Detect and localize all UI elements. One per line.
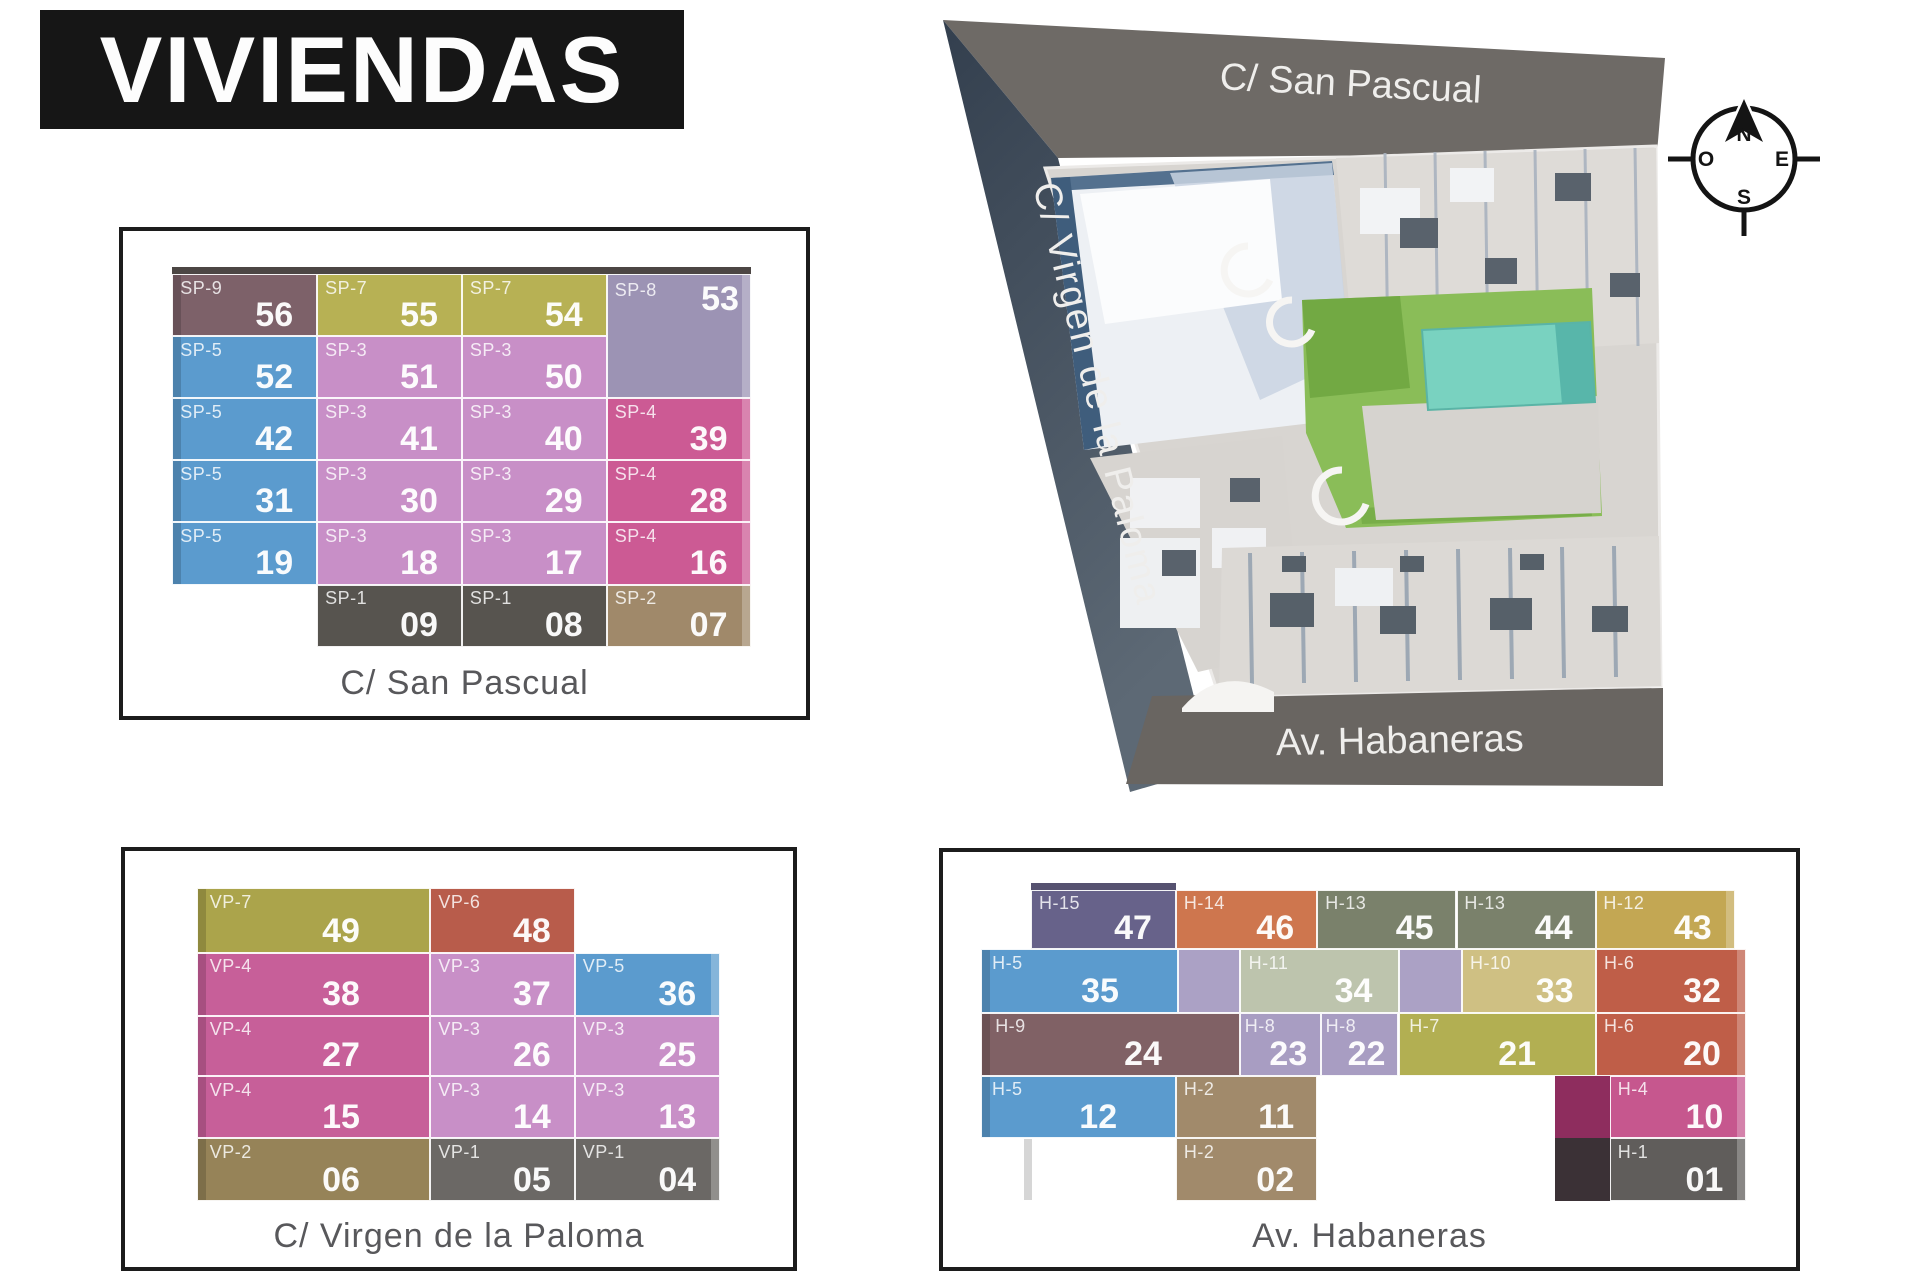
unit-type-label: SP-7 bbox=[470, 278, 512, 299]
unit-cell-56[interactable]: SP-956 bbox=[172, 274, 317, 336]
unit-cell-13[interactable]: VP-313 bbox=[575, 1076, 721, 1138]
unit-cell-23[interactable]: H-823 bbox=[1240, 1013, 1321, 1076]
unit-cell-25[interactable]: VP-325 bbox=[575, 1016, 721, 1077]
unit-type-label: SP-3 bbox=[470, 402, 512, 423]
unit-cell-30[interactable]: SP-330 bbox=[317, 460, 462, 522]
unit-cell-36[interactable]: VP-536 bbox=[575, 953, 721, 1016]
unit-cell-53[interactable]: SP-853 bbox=[607, 274, 752, 398]
unit-cell-20[interactable]: H-620 bbox=[1596, 1013, 1746, 1076]
unit-type-label: SP-3 bbox=[325, 402, 367, 423]
unit-type-label: VP-3 bbox=[583, 1080, 625, 1101]
unit-cell-16[interactable]: SP-416 bbox=[607, 522, 752, 584]
unit-number: 40 bbox=[545, 421, 583, 458]
unit-number: 25 bbox=[658, 1037, 696, 1074]
unit-cell-46[interactable]: H-1446 bbox=[1176, 890, 1318, 949]
unit-type-label: H-7 bbox=[1409, 1016, 1440, 1037]
unit-cell-41[interactable]: SP-341 bbox=[317, 398, 462, 460]
unit-type-label: SP-1 bbox=[470, 588, 512, 609]
unit-cell-07[interactable]: SP-207 bbox=[607, 585, 752, 647]
unit-type-label: VP-3 bbox=[438, 1019, 480, 1040]
unit-number: 13 bbox=[658, 1099, 696, 1136]
unit-cell-48[interactable]: VP-648 bbox=[430, 888, 574, 952]
unit-cell-33[interactable]: H-1033 bbox=[1462, 949, 1595, 1013]
unit-cell-24[interactable]: H-924 bbox=[981, 1013, 1239, 1076]
unit-type-label: SP-3 bbox=[325, 464, 367, 485]
unit-cell-12[interactable]: H-512 bbox=[981, 1076, 1175, 1139]
unit-cell-34[interactable]: H-1134 bbox=[1240, 949, 1399, 1013]
block-face bbox=[1555, 1138, 1610, 1201]
unit-type-label: SP-8 bbox=[615, 280, 657, 301]
unit-cell-03[interactable]: H-303 bbox=[1023, 1138, 1176, 1201]
unit-cell-04[interactable]: VP-104 bbox=[575, 1138, 721, 1201]
unit-cell-47[interactable]: H-1547 bbox=[1031, 890, 1176, 949]
unit-number: 06 bbox=[322, 1162, 360, 1199]
unit-number: 19 bbox=[255, 545, 293, 582]
unit-cell-18[interactable]: SP-318 bbox=[317, 522, 462, 584]
unit-type-label: SP-3 bbox=[470, 464, 512, 485]
unit-cell-43[interactable]: H-1243 bbox=[1596, 890, 1735, 949]
unit-number: 20 bbox=[1683, 1036, 1721, 1073]
unit-cell-26[interactable]: VP-326 bbox=[430, 1016, 574, 1077]
unit-cell-54[interactable]: SP-754 bbox=[462, 274, 607, 336]
block-face bbox=[1555, 1076, 1610, 1139]
unit-type-label: SP-3 bbox=[325, 340, 367, 361]
unit-number: 26 bbox=[513, 1037, 551, 1074]
aerial-site-plan: C/ San Pascual C/ Virgen de la Paloma Av… bbox=[930, 8, 1820, 800]
unit-number: 50 bbox=[545, 359, 583, 396]
unit-number: 02 bbox=[1256, 1162, 1294, 1199]
unit-type-label: H-13 bbox=[1464, 893, 1505, 914]
unit-number: 39 bbox=[690, 421, 728, 458]
unit-cell-10[interactable]: H-410 bbox=[1610, 1076, 1746, 1139]
unit-type-label: H-15 bbox=[1039, 893, 1080, 914]
unit-type-label: VP-3 bbox=[583, 1019, 625, 1040]
courtyard-terrace bbox=[1362, 396, 1601, 520]
unit-number: 23 bbox=[1269, 1036, 1307, 1073]
unit-number: 34 bbox=[1335, 973, 1373, 1010]
unit-number: 53 bbox=[701, 281, 739, 318]
unit-cell-40[interactable]: SP-340 bbox=[462, 398, 607, 460]
unit-cell-14[interactable]: VP-314 bbox=[430, 1076, 574, 1138]
unit-type-label: H-9 bbox=[995, 1016, 1026, 1037]
unit-cell-05[interactable]: VP-105 bbox=[430, 1138, 574, 1201]
unit-type-label: H-5 bbox=[992, 1079, 1023, 1100]
unit-number: 31 bbox=[255, 483, 293, 520]
unit-number: 32 bbox=[1683, 973, 1721, 1010]
unit-cell-39[interactable]: SP-439 bbox=[607, 398, 752, 460]
street-label: C/ Virgen de la Paloma bbox=[125, 1217, 793, 1256]
panel-habaneras: Av. Habaneras H-1547H-1446H-1345H-1344H-… bbox=[939, 848, 1800, 1271]
unit-cell-35[interactable]: H-535 bbox=[981, 949, 1178, 1013]
unit-cell-11[interactable]: H-211 bbox=[1176, 1076, 1318, 1139]
unit-cell-32[interactable]: H-632 bbox=[1596, 949, 1746, 1013]
unit-number: 38 bbox=[322, 976, 360, 1013]
unit-cell-45[interactable]: H-1345 bbox=[1317, 890, 1456, 949]
unit-type-label: VP-3 bbox=[438, 1080, 480, 1101]
unit-type-label: VP-2 bbox=[210, 1142, 252, 1163]
unit-number: 49 bbox=[322, 913, 360, 950]
unit-type-label: VP-4 bbox=[210, 1080, 252, 1101]
unit-number: 29 bbox=[545, 483, 583, 520]
unit-number: 04 bbox=[658, 1162, 696, 1199]
unit-type-label: SP-5 bbox=[180, 340, 222, 361]
unit-type-label: H-10 bbox=[1470, 953, 1511, 974]
unit-number: 30 bbox=[400, 483, 438, 520]
unit-type-label: H-13 bbox=[1325, 893, 1366, 914]
unit-number: 46 bbox=[1256, 910, 1294, 947]
unit-cell-55[interactable]: SP-755 bbox=[317, 274, 462, 336]
aerial-svg: C/ San Pascual C/ Virgen de la Paloma Av… bbox=[930, 8, 1820, 800]
unit-cell-50[interactable]: SP-350 bbox=[462, 336, 607, 398]
unit-number: 08 bbox=[545, 607, 583, 644]
street-label-habaneras-aerial: Av. Habaneras bbox=[1276, 718, 1525, 764]
block-face bbox=[1178, 949, 1239, 1013]
unit-cell-52[interactable]: SP-552 bbox=[172, 336, 317, 398]
unit-number: 05 bbox=[513, 1162, 551, 1199]
unit-number: 07 bbox=[690, 607, 728, 644]
unit-cell-06[interactable]: VP-206 bbox=[197, 1138, 430, 1201]
unit-type-label: H-6 bbox=[1604, 1016, 1635, 1037]
unit-type-label: H-11 bbox=[1249, 953, 1289, 974]
compass-o: O bbox=[1698, 148, 1714, 171]
unit-number: 55 bbox=[400, 297, 438, 334]
unit-number: 52 bbox=[255, 359, 293, 396]
unit-number: 42 bbox=[255, 421, 293, 458]
unit-cell-38[interactable]: VP-438 bbox=[197, 953, 430, 1016]
unit-type-label: H-5 bbox=[992, 953, 1023, 974]
unit-cell-28[interactable]: SP-428 bbox=[607, 460, 752, 522]
unit-number: 56 bbox=[255, 297, 293, 334]
page-title: VIVIENDAS bbox=[40, 10, 684, 129]
unit-number: 45 bbox=[1396, 910, 1434, 947]
panel-san-pascual: C/ San Pascual SP-956SP-755SP-754SP-853S… bbox=[119, 227, 810, 720]
unit-number: 22 bbox=[1348, 1036, 1386, 1073]
unit-number: 51 bbox=[400, 359, 438, 396]
unit-type-label: VP-5 bbox=[583, 956, 625, 977]
unit-type-label: H-12 bbox=[1603, 893, 1644, 914]
unit-type-label: SP-3 bbox=[325, 526, 367, 547]
compass-e: E bbox=[1775, 148, 1789, 171]
building-block-south bbox=[1182, 536, 1661, 712]
unit-type-label: VP-3 bbox=[438, 956, 480, 977]
block-face bbox=[1399, 949, 1463, 1013]
unit-type-label: VP-1 bbox=[438, 1142, 480, 1163]
unit-number: 18 bbox=[400, 545, 438, 582]
unit-number: 12 bbox=[1079, 1099, 1117, 1136]
unit-cell-49[interactable]: VP-749 bbox=[197, 888, 430, 952]
unit-type-label: SP-4 bbox=[615, 464, 657, 485]
unit-number: 01 bbox=[1685, 1162, 1723, 1199]
unit-number: 10 bbox=[1685, 1099, 1723, 1136]
unit-number: 47 bbox=[1114, 910, 1152, 947]
unit-cell-44[interactable]: H-1344 bbox=[1457, 890, 1596, 949]
unit-number: 33 bbox=[1536, 973, 1574, 1010]
unit-cell-21[interactable]: H-721 bbox=[1399, 1013, 1596, 1076]
unit-cell-22[interactable]: H-822 bbox=[1321, 1013, 1399, 1076]
unit-number: 11 bbox=[1258, 1099, 1294, 1136]
unit-cell-15[interactable]: VP-415 bbox=[197, 1076, 430, 1138]
unit-number: 35 bbox=[1081, 973, 1119, 1010]
unit-number: 41 bbox=[400, 421, 438, 458]
unit-number: 27 bbox=[322, 1037, 360, 1074]
unit-type-label: H-4 bbox=[1618, 1079, 1649, 1100]
unit-type-label: SP-5 bbox=[180, 464, 222, 485]
unit-number: 21 bbox=[1498, 1036, 1536, 1073]
unit-type-label: SP-3 bbox=[470, 340, 512, 361]
unit-cell-02[interactable]: H-202 bbox=[1176, 1138, 1318, 1201]
unit-type-label: SP-5 bbox=[180, 526, 222, 547]
unit-number: 15 bbox=[322, 1099, 360, 1136]
unit-type-label: SP-3 bbox=[470, 526, 512, 547]
unit-type-label: VP-6 bbox=[438, 892, 480, 913]
unit-number: 28 bbox=[690, 483, 728, 520]
unit-type-label: SP-1 bbox=[325, 588, 367, 609]
unit-number: 16 bbox=[690, 545, 728, 582]
unit-type-label: H-2 bbox=[1184, 1079, 1215, 1100]
unit-type-label: VP-1 bbox=[583, 1142, 625, 1163]
unit-cell-08[interactable]: SP-108 bbox=[462, 585, 607, 647]
unit-cell-42[interactable]: SP-542 bbox=[172, 398, 317, 460]
unit-type-label: SP-4 bbox=[615, 526, 657, 547]
unit-cell-51[interactable]: SP-351 bbox=[317, 336, 462, 398]
compass-n: N bbox=[1736, 123, 1751, 146]
unit-number: 54 bbox=[545, 297, 583, 334]
unit-type-label: H-2 bbox=[1184, 1142, 1215, 1163]
unit-cell-27[interactable]: VP-427 bbox=[197, 1016, 430, 1077]
unit-number: 36 bbox=[658, 976, 696, 1013]
unit-number: 14 bbox=[513, 1099, 551, 1136]
compass-rose: N O E S bbox=[1668, 99, 1820, 236]
unit-cell-37[interactable]: VP-337 bbox=[430, 953, 574, 1016]
unit-type-label: SP-5 bbox=[180, 402, 222, 423]
unit-cell-17[interactable]: SP-317 bbox=[462, 522, 607, 584]
unit-number: 44 bbox=[1535, 910, 1573, 947]
unit-cell-31[interactable]: SP-531 bbox=[172, 460, 317, 522]
unit-number: 09 bbox=[400, 607, 438, 644]
unit-number: 48 bbox=[513, 913, 551, 950]
unit-cell-29[interactable]: SP-329 bbox=[462, 460, 607, 522]
unit-type-label: H-6 bbox=[1604, 953, 1635, 974]
unit-number: 37 bbox=[513, 976, 551, 1013]
unit-type-label: H-14 bbox=[1184, 893, 1225, 914]
unit-type-label: VP-4 bbox=[210, 956, 252, 977]
unit-number: 43 bbox=[1674, 910, 1712, 947]
unit-type-label: VP-7 bbox=[210, 892, 252, 913]
unit-cell-09[interactable]: SP-109 bbox=[317, 585, 462, 647]
unit-type-label: SP-2 bbox=[615, 588, 657, 609]
unit-type-label: H-1 bbox=[1618, 1142, 1649, 1163]
compass-s: S bbox=[1737, 186, 1751, 209]
unit-number: 03 bbox=[1113, 1162, 1151, 1199]
panel-virgen-paloma: C/ Virgen de la Paloma VP-749VP-648VP-43… bbox=[121, 847, 797, 1271]
street-label: Av. Habaneras bbox=[943, 1217, 1796, 1256]
unit-cell-01[interactable]: H-101 bbox=[1610, 1138, 1746, 1201]
unit-type-label: VP-4 bbox=[210, 1019, 252, 1040]
unit-type-label: H-3 bbox=[1032, 1142, 1063, 1163]
street-label: C/ San Pascual bbox=[123, 664, 806, 703]
unit-type-label: SP-4 bbox=[615, 402, 657, 423]
unit-type-label: SP-7 bbox=[325, 278, 367, 299]
page-title-text: VIVIENDAS bbox=[100, 16, 625, 124]
unit-type-label: SP-9 bbox=[180, 278, 222, 299]
unit-number: 17 bbox=[545, 545, 583, 582]
unit-cell-19[interactable]: SP-519 bbox=[172, 522, 317, 584]
unit-number: 24 bbox=[1124, 1036, 1162, 1073]
